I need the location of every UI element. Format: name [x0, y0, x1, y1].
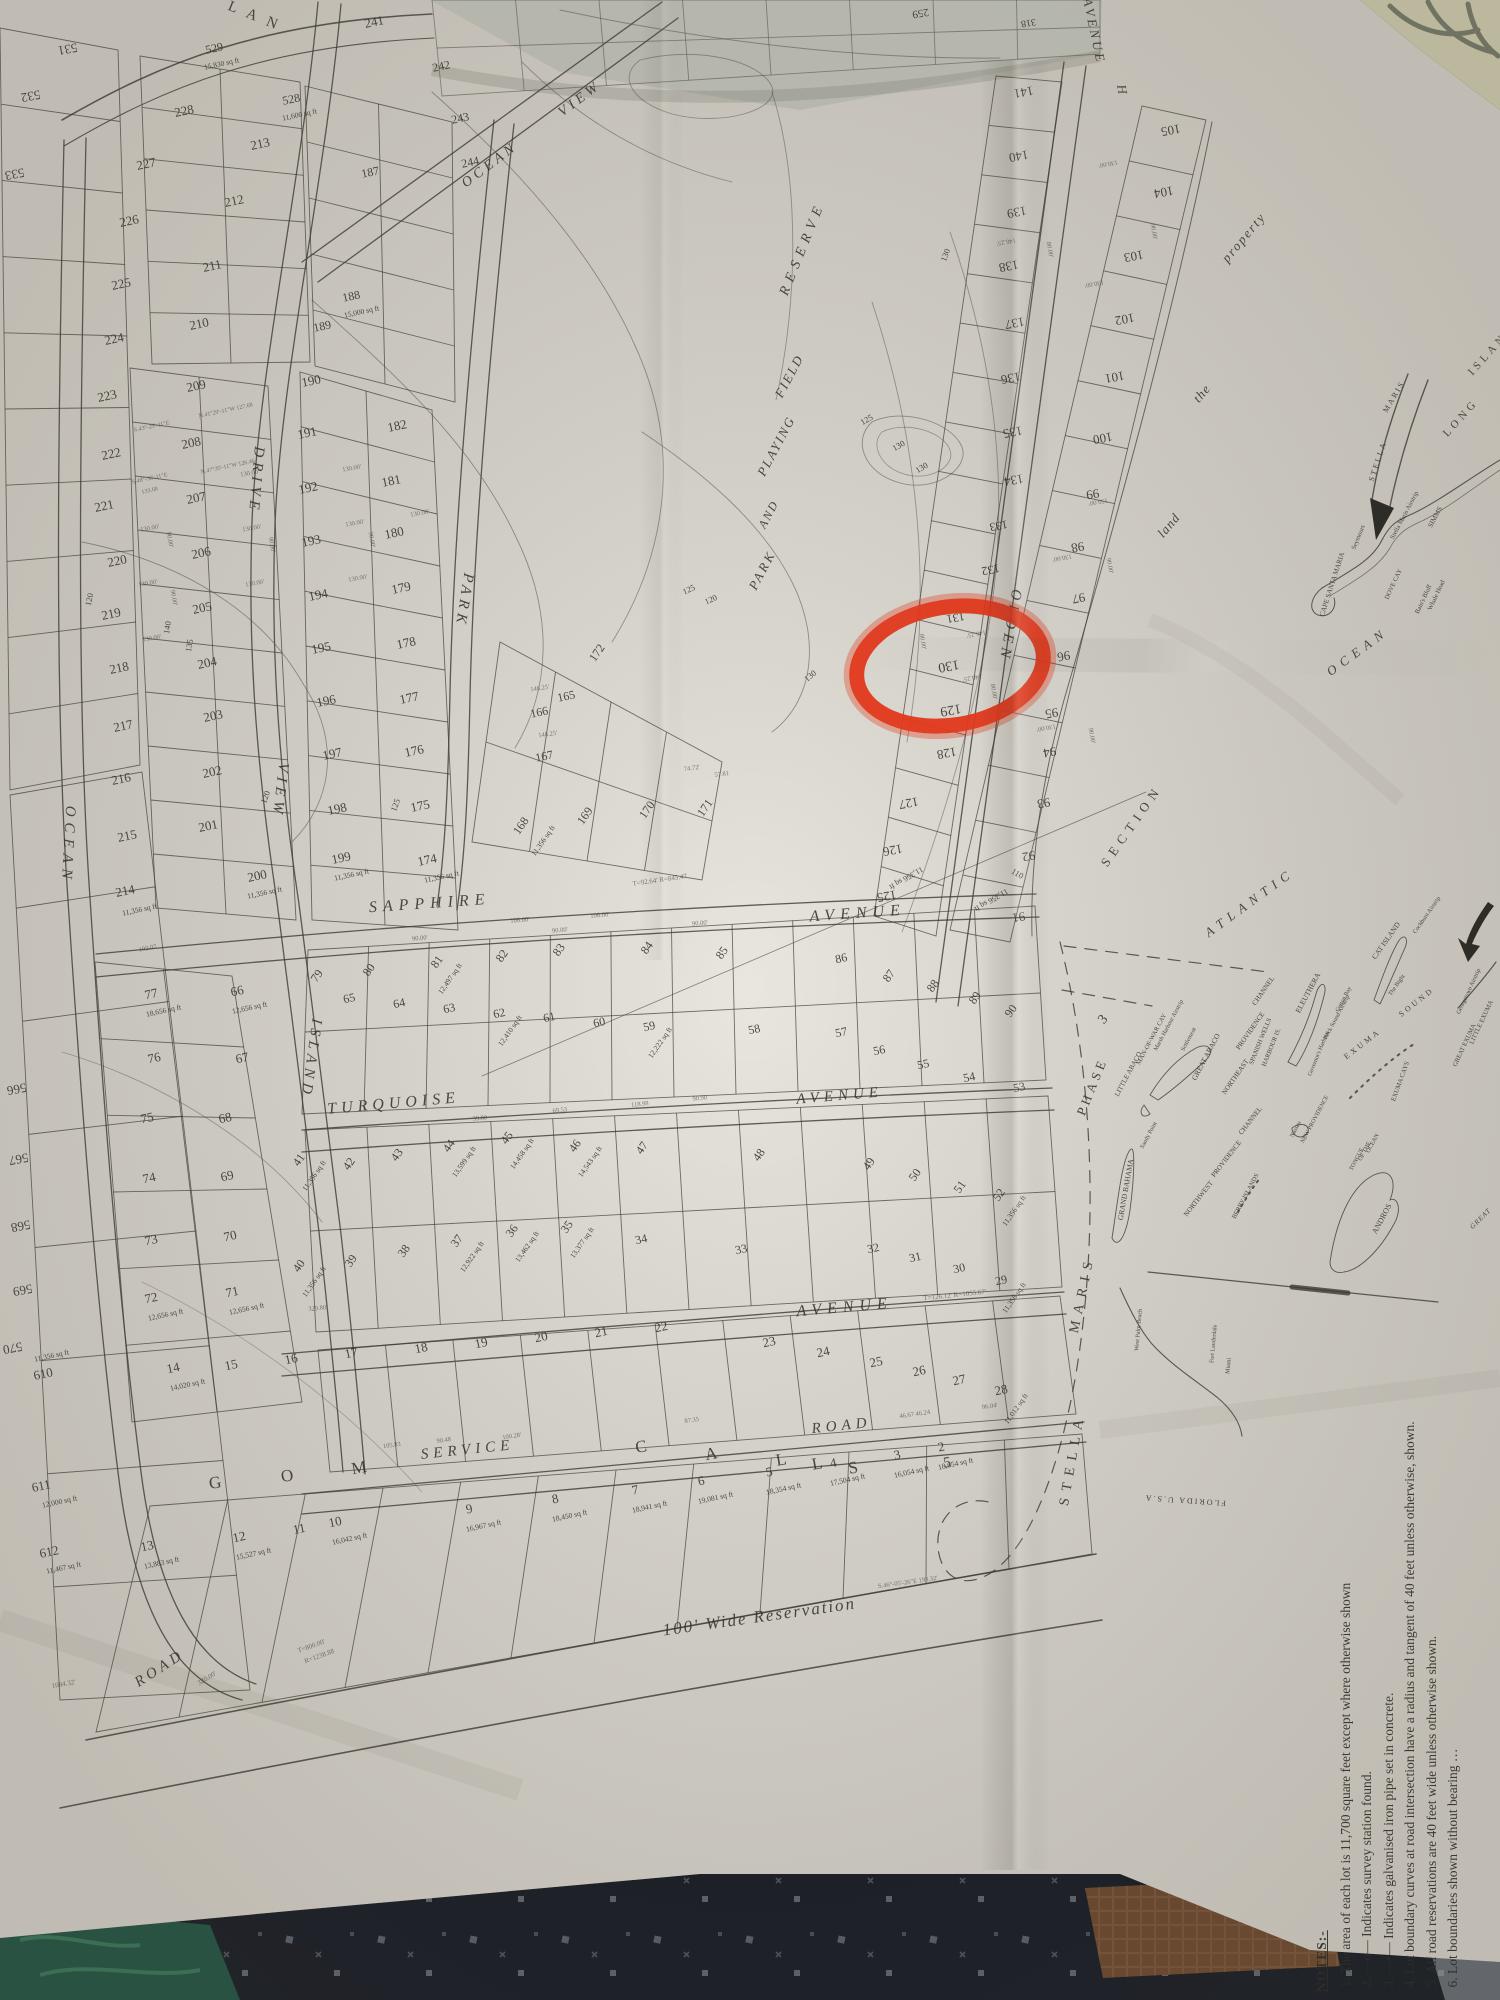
notes-block: NOTES:- The area of each lot is 11,700 s… — [1312, 1112, 1498, 1992]
map-label: 92 — [1021, 848, 1036, 865]
note-item: The area of each lot is 11,700 square fe… — [1336, 1112, 1356, 1974]
map-label: 93 — [1036, 795, 1051, 812]
note-item: —o— Indicates survey station found. — [1357, 1112, 1377, 1974]
plat-map-svg: L A NOCEANVIEWDRIVEVIEWISLANDOCEANPARKOL… — [0, 0, 1500, 2000]
photo-of-plat-map: L A NOCEANVIEWDRIVEVIEWISLANDOCEANPARKOL… — [0, 0, 1500, 2000]
note-item: Lot boundaries shown without bearing … — [1443, 1112, 1463, 1974]
note-item: —•— Indicates galvanised iron pipe set i… — [1379, 1112, 1399, 1974]
map-label: 90.00' — [692, 919, 708, 927]
map-label: 95 — [1044, 705, 1059, 722]
map-label: 90.00' — [552, 926, 568, 934]
note-item: All road reservations are 40 feet wide u… — [1422, 1112, 1442, 1974]
notes-title: NOTES:- — [1312, 1112, 1332, 1992]
map-label: 90.00' — [412, 934, 428, 942]
map-label: 91 — [1011, 909, 1026, 926]
map-label: 98 — [1070, 539, 1085, 556]
note-item: Lot boundary curves at road intersection… — [1400, 1112, 1420, 1974]
